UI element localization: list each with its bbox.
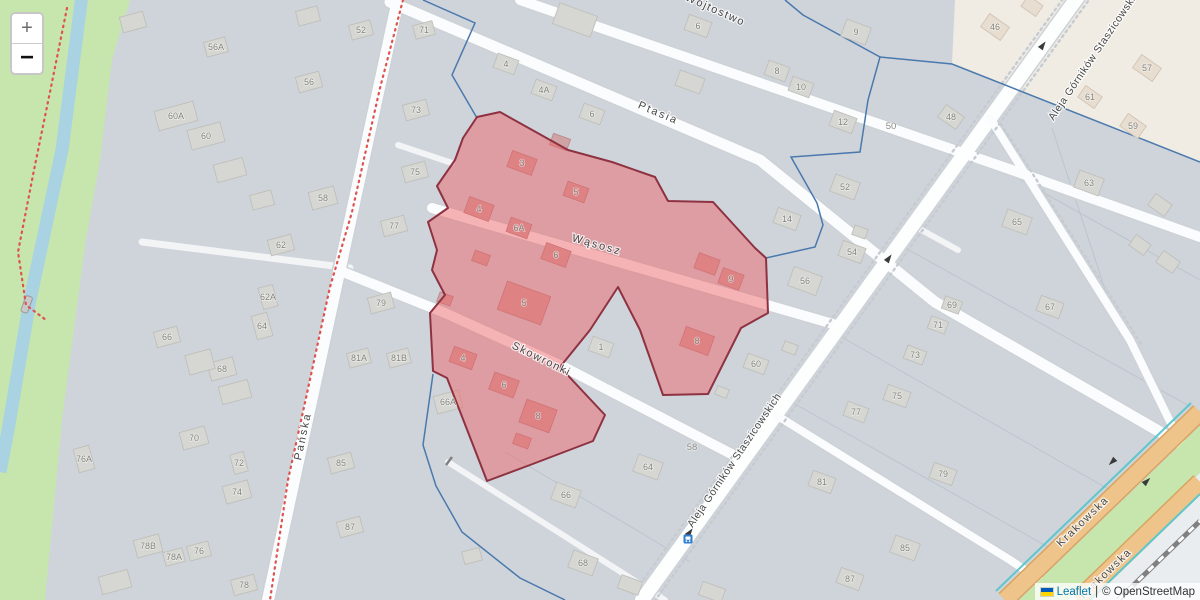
- osm-credit: © OpenStreetMap: [1102, 586, 1195, 598]
- house-number: 75: [892, 391, 902, 401]
- house-number: 76: [194, 546, 204, 556]
- house-number: 56: [800, 276, 810, 286]
- house-number: 4A: [538, 85, 549, 95]
- house-number: 77: [389, 221, 399, 231]
- attribution-separator: |: [1095, 586, 1098, 598]
- house-number: 60: [751, 359, 761, 369]
- house-number: 6A: [513, 223, 524, 233]
- map-canvas[interactable]: 56A565260A60586262A64666870727476A78B78A…: [0, 0, 1200, 600]
- house-number: 62A: [260, 292, 276, 302]
- house-number: 67: [1045, 302, 1055, 312]
- bus-stop-icon: [684, 535, 693, 544]
- house-number: 10: [796, 82, 806, 92]
- house-number: 5: [573, 187, 578, 197]
- house-number: 54: [847, 247, 857, 257]
- house-number: 56A: [208, 42, 224, 52]
- area-label: 50: [886, 121, 897, 132]
- house-number: 64: [257, 321, 267, 331]
- house-number: 81: [817, 477, 827, 487]
- house-number: 3: [519, 158, 524, 168]
- house-number: 78A: [166, 552, 182, 562]
- house-number: 71: [419, 25, 429, 35]
- zoom-out-button[interactable]: −: [12, 43, 42, 73]
- house-number: 8: [774, 66, 779, 76]
- house-number: 62: [276, 240, 286, 250]
- house-number: 9: [853, 27, 858, 37]
- house-number: 85: [900, 543, 910, 553]
- house-number: 69: [947, 300, 957, 310]
- house-number: 58: [318, 193, 328, 203]
- house-number: 52: [356, 25, 366, 35]
- house-number: 6: [695, 21, 700, 31]
- house-number: 6: [589, 109, 594, 119]
- ukraine-flag-icon: [1041, 588, 1053, 596]
- zoom-in-button[interactable]: +: [12, 14, 42, 43]
- house-number: 85: [336, 458, 346, 468]
- house-number: 71: [933, 320, 943, 330]
- leaflet-link[interactable]: Leaflet: [1057, 586, 1092, 598]
- house-number: 61: [1085, 92, 1095, 102]
- house-number: 72: [234, 458, 244, 468]
- house-number: 46: [990, 22, 1000, 32]
- house-number: 4: [460, 353, 465, 363]
- house-number: 77: [851, 407, 861, 417]
- house-number: 48: [946, 112, 956, 122]
- house-number: 76A: [76, 454, 92, 464]
- house-number: 73: [910, 350, 920, 360]
- house-number: 12: [838, 117, 848, 127]
- house-number: 59: [1128, 121, 1138, 131]
- house-number: 68: [217, 364, 227, 374]
- house-number: 66: [162, 332, 172, 342]
- area-label: 58: [687, 442, 698, 453]
- house-number: 8: [694, 336, 699, 346]
- house-number: 65: [1012, 217, 1022, 227]
- house-number: 66: [561, 490, 571, 500]
- house-number: 4: [476, 204, 481, 214]
- house-number: 14: [782, 214, 792, 224]
- house-number: 1: [598, 342, 603, 352]
- house-number: 81A: [351, 353, 367, 363]
- house-number: 79: [938, 469, 948, 479]
- house-number: 63: [1084, 178, 1094, 188]
- house-number: 6: [501, 380, 506, 390]
- house-number: 5: [521, 298, 526, 308]
- house-number: 9: [728, 274, 733, 284]
- house-number: 60: [201, 131, 211, 141]
- house-number: 87: [845, 574, 855, 584]
- house-number: 79: [376, 298, 386, 308]
- house-number: 8: [535, 411, 540, 421]
- house-number: 56: [304, 77, 314, 87]
- house-number: 4: [503, 59, 508, 69]
- house-number: 6: [553, 250, 558, 260]
- house-number: 68: [578, 558, 588, 568]
- house-number: 52: [840, 182, 850, 192]
- house-number: 75: [410, 167, 420, 177]
- house-number: 70: [189, 433, 199, 443]
- house-number: 64: [643, 462, 653, 472]
- house-number: 78B: [140, 541, 156, 551]
- house-number: 57: [1142, 63, 1152, 73]
- house-number: 81B: [391, 353, 407, 363]
- house-number: 87: [345, 522, 355, 532]
- attribution-bar: Leaflet | © OpenStreetMap: [1035, 583, 1200, 600]
- house-number: 73: [411, 105, 421, 115]
- house-number: 66A: [440, 397, 456, 407]
- house-number: 60A: [168, 111, 184, 121]
- zoom-control: + −: [10, 12, 44, 75]
- house-number: 78: [239, 580, 249, 590]
- house-number: 74: [232, 487, 242, 497]
